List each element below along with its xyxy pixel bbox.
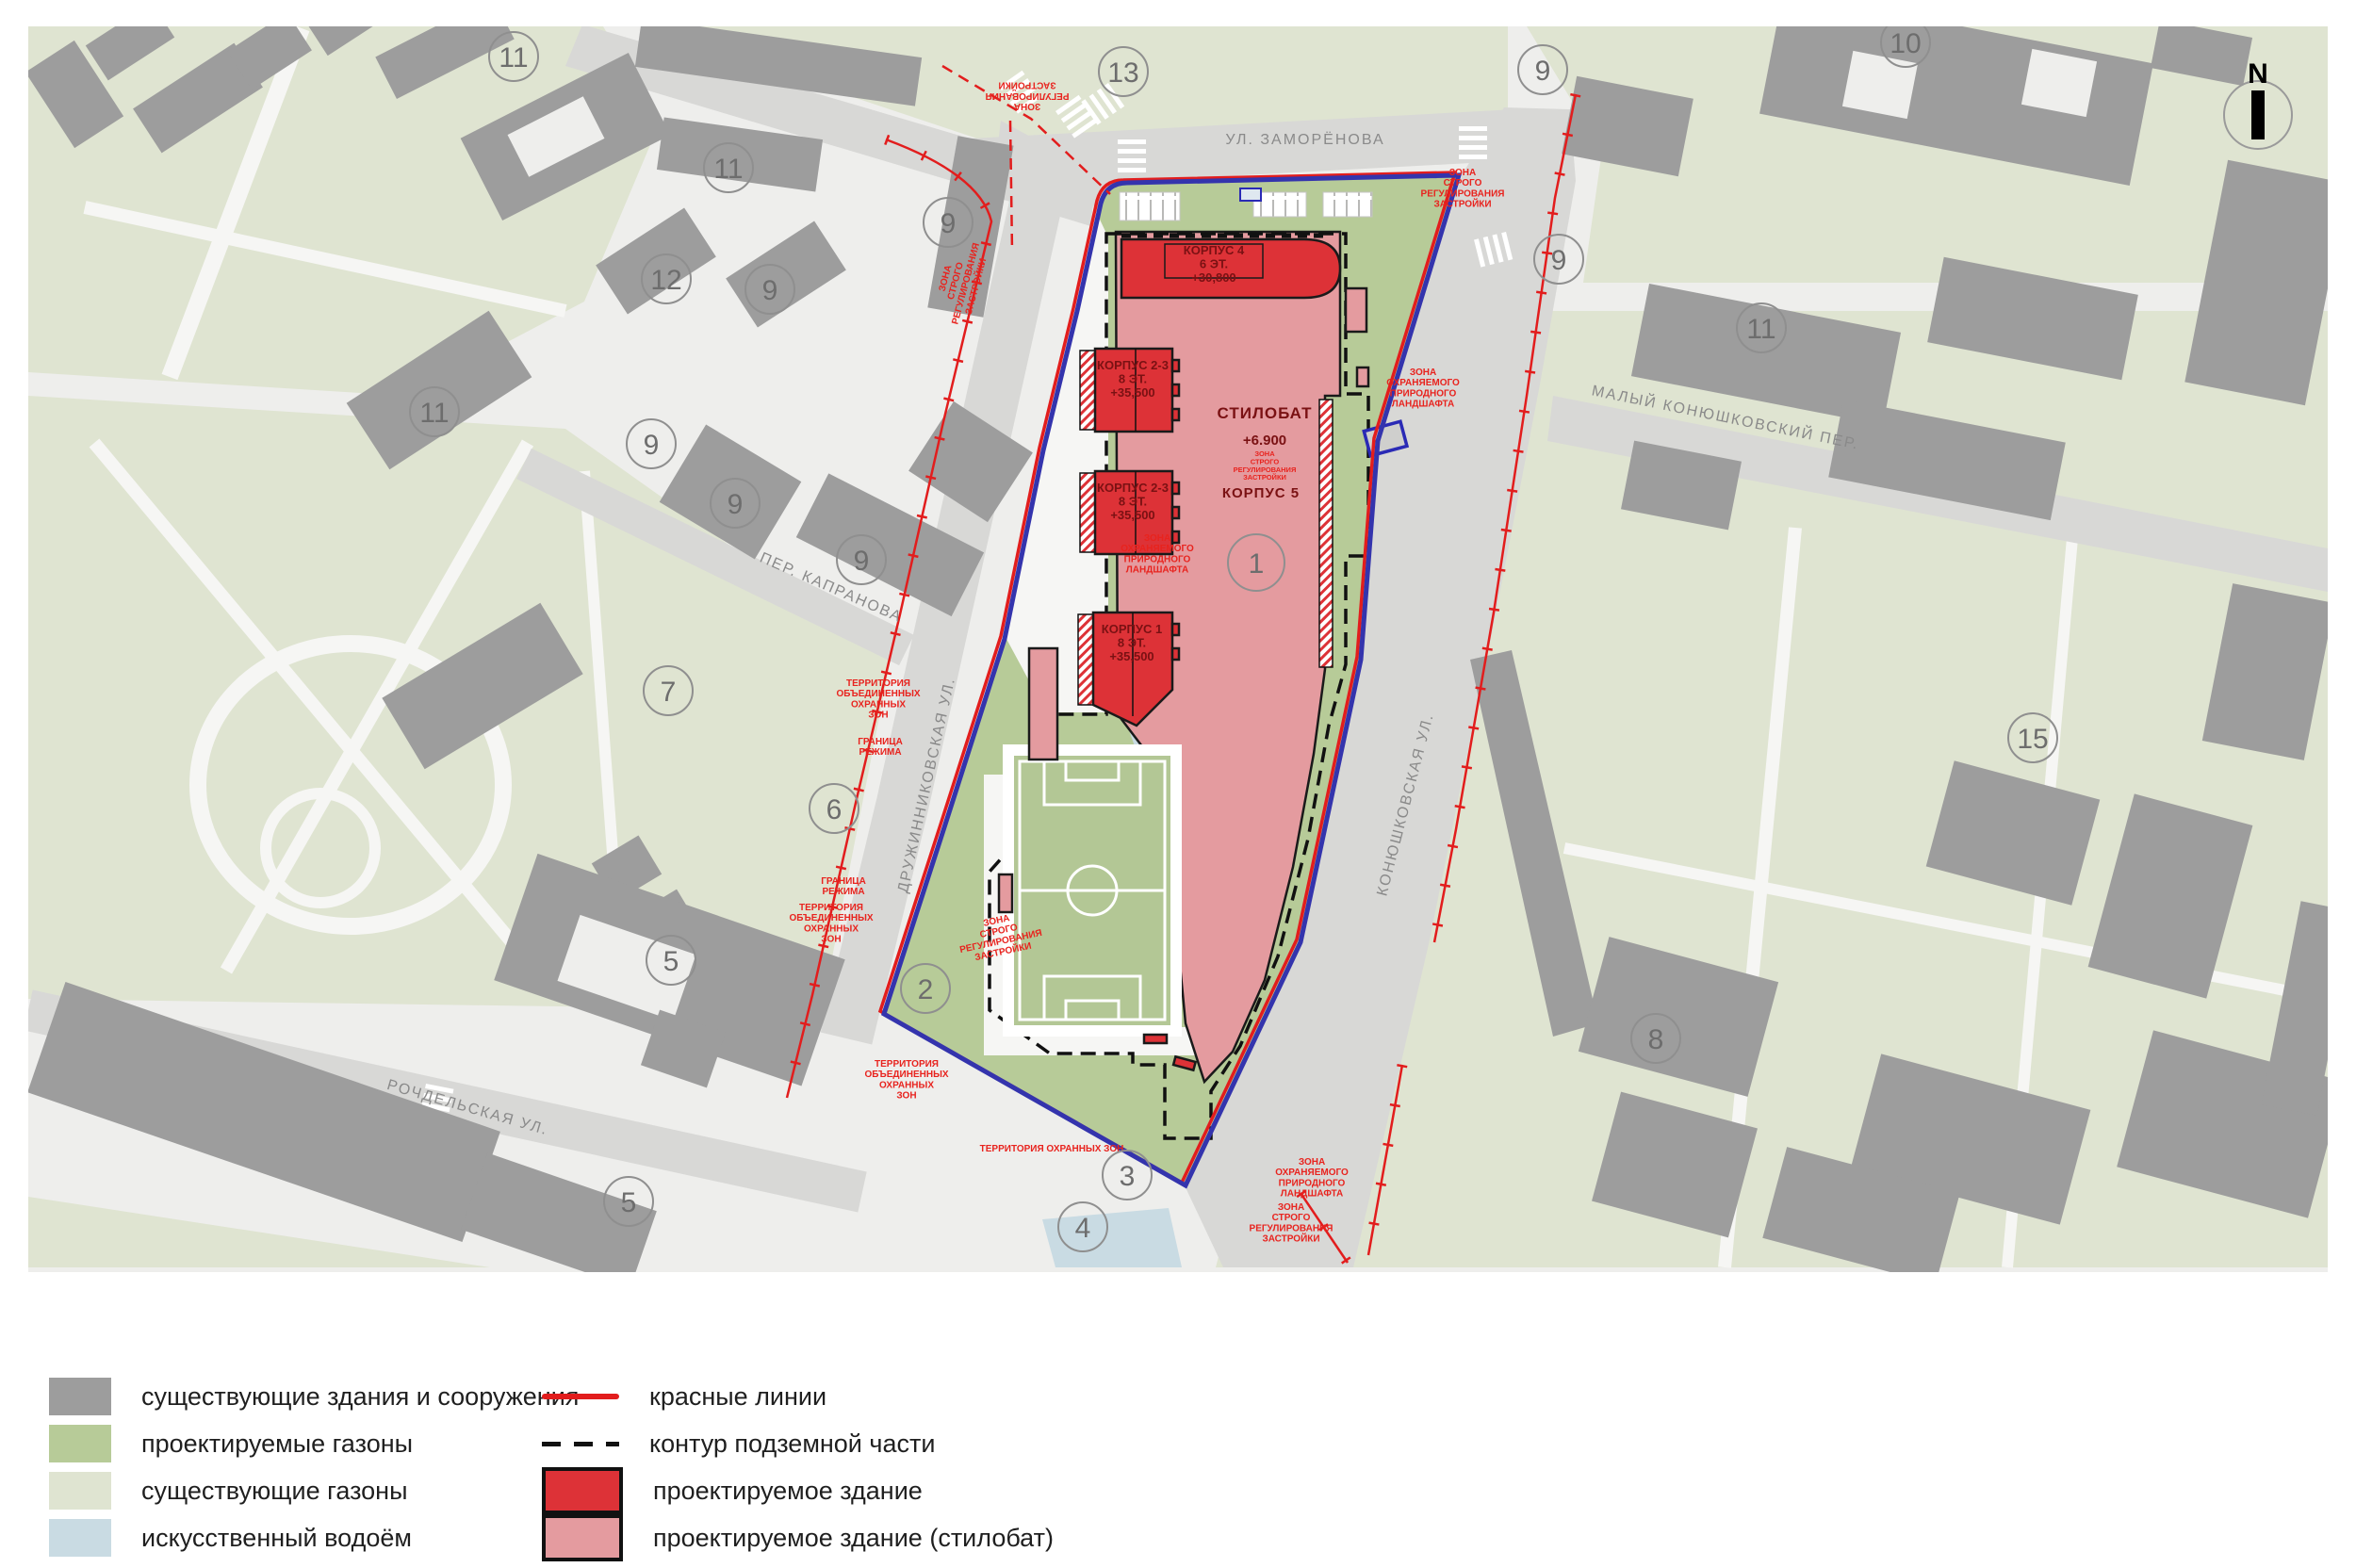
legend-label: проектируемое здание xyxy=(653,1477,923,1506)
stylobate-swatch xyxy=(542,1514,623,1561)
legend-label: существующие здания и сооружения xyxy=(141,1382,579,1412)
svg-text:9: 9 xyxy=(854,546,870,577)
balcony xyxy=(1172,624,1179,635)
svg-text:9: 9 xyxy=(762,275,778,306)
underground-contour-swatch xyxy=(542,1442,619,1446)
svg-text:7: 7 xyxy=(661,677,677,708)
zone-label: ГРАНИЦАРЕЖИМА xyxy=(858,737,903,758)
pond-swatch xyxy=(49,1519,111,1557)
svg-text:11: 11 xyxy=(419,398,449,429)
legend-item-underground-contour: контур подземной части xyxy=(542,1425,1054,1462)
parking-row xyxy=(1120,192,1180,220)
red-line-swatch xyxy=(542,1394,619,1399)
stylobate-label: СТИЛОБАТ xyxy=(1218,404,1313,422)
legend-item-projected-lawns: проектируемые газоны xyxy=(49,1425,579,1462)
stylobate-piece xyxy=(1346,288,1366,332)
map-canvas: УЛ. ЗАМОРЁНОВА МАЛЫЙ КОНЮШКОВСКИЙ ПЕР. П… xyxy=(25,0,2356,1288)
legend-item-stylobate: проектируемое здание (стилобат) xyxy=(542,1519,1054,1557)
svg-text:10: 10 xyxy=(1890,28,1921,59)
legend-label: искусственный водоём xyxy=(141,1524,412,1553)
svg-text:9: 9 xyxy=(941,208,957,239)
svg-text:11: 11 xyxy=(1746,314,1775,345)
legend-label: проектируемые газоны xyxy=(141,1429,413,1459)
korpus-5-label: КОРПУС 5 xyxy=(1222,485,1300,501)
legend-item-existing-lawns: существующие газоны xyxy=(49,1472,579,1510)
legend-label: красные линии xyxy=(649,1382,826,1412)
svg-text:11: 11 xyxy=(499,42,528,73)
balcony xyxy=(1172,409,1179,420)
balcony xyxy=(1172,360,1179,371)
projected-lawns-swatch xyxy=(49,1425,111,1462)
balcony xyxy=(1172,507,1179,518)
svg-text:5: 5 xyxy=(621,1187,637,1218)
legend-item-existing-buildings: существующие здания и сооружения xyxy=(49,1378,579,1415)
stylobate-elevation: +6.900 xyxy=(1243,433,1286,449)
svg-text:1: 1 xyxy=(1249,548,1265,580)
north-arrow-bar xyxy=(2251,90,2265,139)
balcony xyxy=(1172,648,1179,660)
stylobate-piece xyxy=(999,874,1012,912)
site-plan-map: УЛ. ЗАМОРЁНОВА МАЛЫЙ КОНЮШКОВСКИЙ ПЕР. П… xyxy=(0,0,2356,1568)
legend-item-red-lines: красные линии xyxy=(542,1378,1054,1415)
parking-row xyxy=(1323,192,1372,217)
legend-label: существующие газоны xyxy=(141,1477,408,1506)
zone-label: ГРАНИЦАРЕЖИМА xyxy=(821,876,866,897)
svg-text:15: 15 xyxy=(2017,724,2048,755)
stylobate-piece xyxy=(1029,648,1057,759)
svg-text:6: 6 xyxy=(826,794,843,825)
legend-right-column: красные линии контур подземной части про… xyxy=(542,1378,1054,1557)
legend-label: проектируемое здание (стилобат) xyxy=(653,1524,1054,1553)
svg-text:13: 13 xyxy=(1107,57,1138,89)
balcony xyxy=(1172,482,1179,494)
site-plan-page: УЛ. ЗАМОРЁНОВА МАЛЫЙ КОНЮШКОВСКИЙ ПЕР. П… xyxy=(0,0,2356,1568)
small-blue-object xyxy=(1240,188,1261,201)
stylobate-edge-hatch xyxy=(1319,400,1333,667)
svg-text:2: 2 xyxy=(918,974,934,1005)
projected-building-swatch xyxy=(542,1467,623,1514)
balcony xyxy=(1172,531,1179,543)
projected-piece xyxy=(1144,1035,1167,1043)
svg-text:3: 3 xyxy=(1120,1161,1136,1192)
legend: существующие здания и сооружения проекти… xyxy=(0,1368,2356,1568)
svg-text:11: 11 xyxy=(713,154,743,185)
legend-item-projected-building: проектируемое здание xyxy=(542,1472,1054,1510)
zone-label: ТЕРРИТОРИЯ ОХРАННЫХ ЗОН xyxy=(980,1144,1124,1154)
svg-text:5: 5 xyxy=(663,946,679,977)
legend-label: контур подземной части xyxy=(649,1429,935,1459)
svg-text:9: 9 xyxy=(1551,245,1567,276)
football-field xyxy=(1008,750,1176,1031)
svg-text:9: 9 xyxy=(1535,56,1551,87)
svg-text:12: 12 xyxy=(650,265,681,296)
svg-text:9: 9 xyxy=(728,489,744,520)
street-label-zamorenova: УЛ. ЗАМОРЁНОВА xyxy=(1225,131,1384,148)
svg-text:8: 8 xyxy=(1648,1024,1664,1055)
existing-buildings-swatch xyxy=(49,1378,111,1415)
north-label: N xyxy=(2248,58,2268,90)
balcony xyxy=(1172,384,1179,396)
existing-lawns-swatch xyxy=(49,1472,111,1510)
svg-text:4: 4 xyxy=(1075,1213,1091,1244)
legend-item-pond: искусственный водоём xyxy=(49,1519,579,1557)
stylobate-piece xyxy=(1357,367,1368,386)
svg-text:9: 9 xyxy=(644,430,660,461)
legend-left-column: существующие здания и сооружения проекти… xyxy=(49,1378,579,1557)
